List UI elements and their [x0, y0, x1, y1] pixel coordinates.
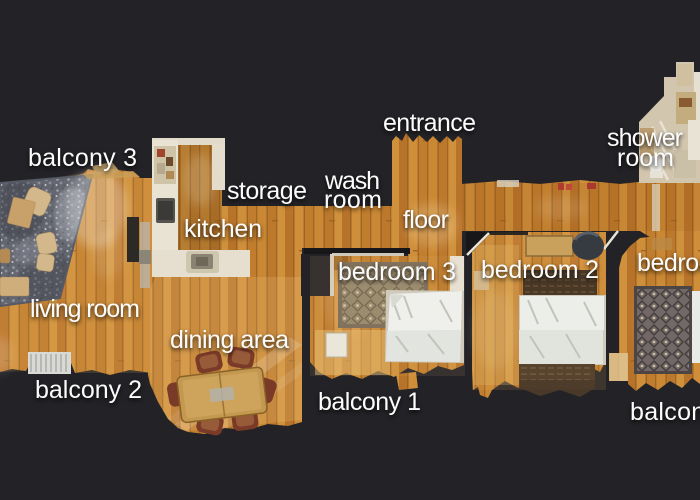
svg-text:balcony 1: balcony 1 — [318, 388, 421, 416]
svg-text:bedroom: bedroom — [637, 249, 700, 277]
svg-text:dining area: dining area — [170, 326, 289, 354]
svg-text:room: room — [617, 144, 674, 172]
svg-text:bedroom 3: bedroom 3 — [338, 258, 456, 286]
svg-text:balcony: balcony — [630, 398, 700, 426]
svg-text:entrance: entrance — [383, 109, 476, 137]
svg-text:room: room — [324, 186, 382, 214]
svg-text:kitchen: kitchen — [184, 215, 262, 243]
svg-text:storage: storage — [227, 177, 307, 205]
svg-text:balcony 2: balcony 2 — [35, 376, 142, 404]
svg-text:bedroom 2: bedroom 2 — [481, 256, 599, 284]
svg-text:living room: living room — [30, 295, 140, 323]
svg-text:floor: floor — [403, 206, 449, 234]
svg-text:balcony 3: balcony 3 — [28, 144, 137, 172]
